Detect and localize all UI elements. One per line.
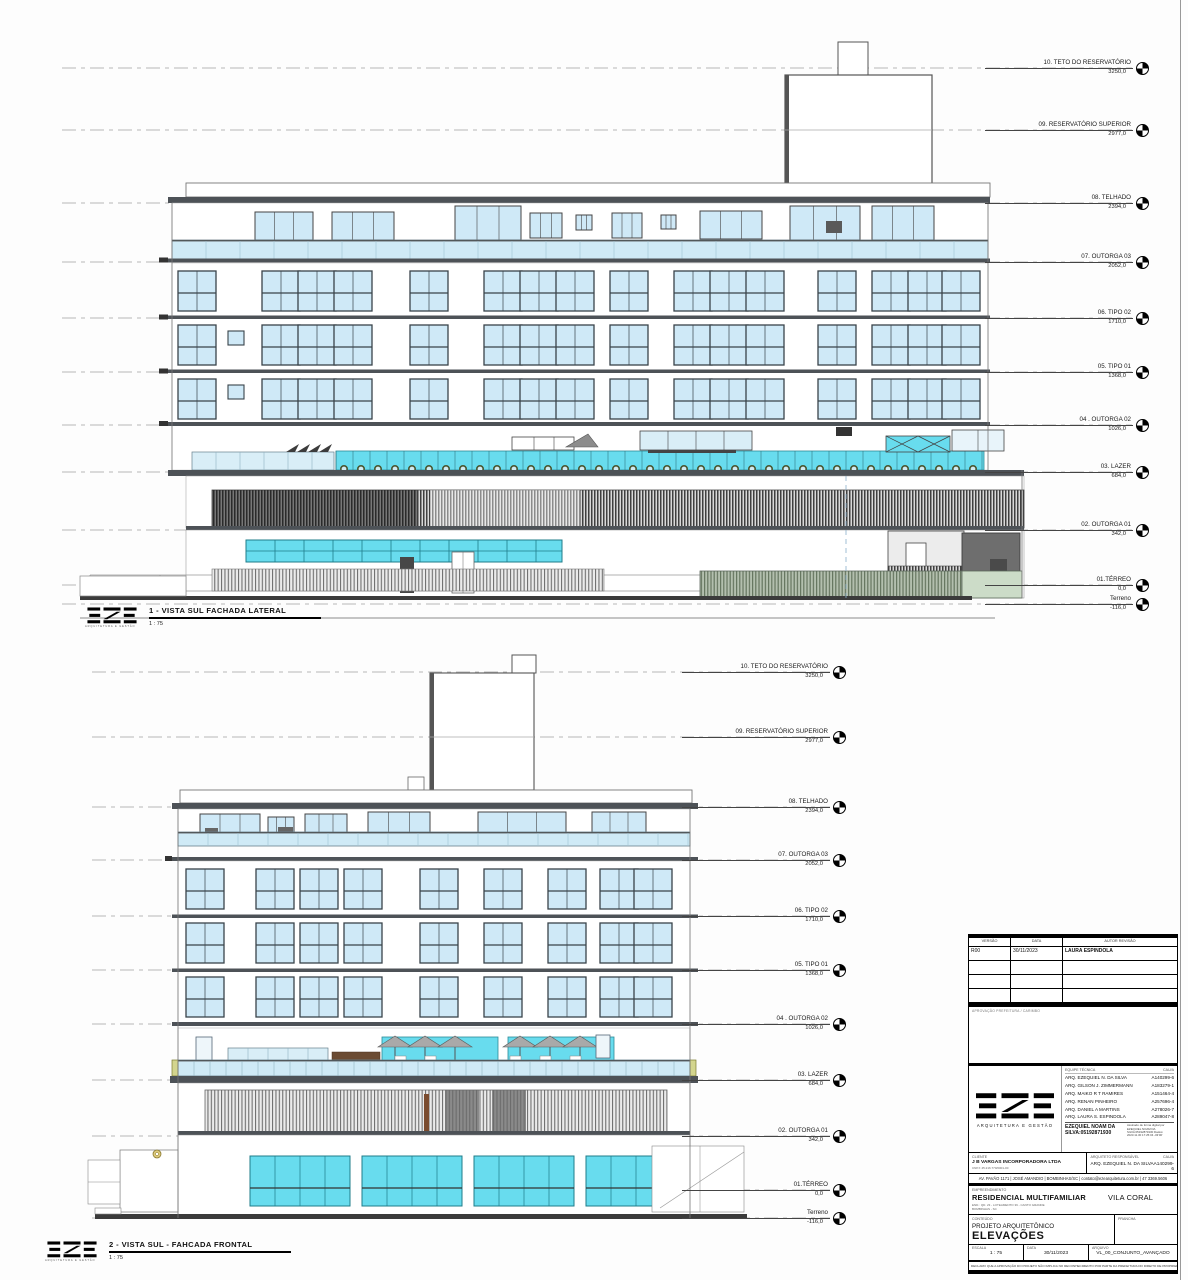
scale-label: ESCALA: [972, 1246, 1020, 1250]
level-marker: 08. TELHADO2394,0: [985, 194, 1133, 211]
level-marker: 10. TETO DO RESERVATÓRIO3250,0: [682, 663, 830, 680]
level-elevation: -116,0: [985, 605, 1133, 612]
level-label: 02. OUTORGA 01: [985, 521, 1133, 531]
approval-label: APROVAÇÃO PREFEITURA / CARIMBO: [972, 1009, 1040, 1013]
level-label: 04 . OUTORGA 02: [682, 1015, 830, 1025]
team-member: ARQ. GILSON J. ZIMMERMANNA183279-1: [1065, 1082, 1174, 1090]
drawing-title: 2 - VISTA SUL - FAHCADA FRONTAL: [109, 1240, 291, 1249]
project-section: EMPREENDIMENTO RESIDENCIAL MULTIFAMILIAR…: [969, 1186, 1177, 1215]
benchmark-icon: [833, 964, 846, 977]
benchmark-icon: [1136, 419, 1149, 432]
client-label: CLIENTE: [972, 1155, 1083, 1159]
benchmark-icon: [1136, 466, 1149, 479]
content-label: CONTEÚDO: [972, 1217, 1111, 1221]
team-member: ARQ. EZEQUIEL N. DA SILVAA140299-6: [1065, 1074, 1174, 1082]
level-elevation: 1026,0: [682, 1025, 830, 1032]
level-marker: 02. OUTORGA 01342,0: [985, 521, 1133, 538]
revision-row: [969, 989, 1177, 1003]
benchmark-icon: [1136, 524, 1149, 537]
level-marker: 06. TIPO 021710,0: [682, 907, 830, 924]
eze-logo-icon: ARQUITETURA E GESTÃO: [85, 607, 139, 628]
level-elevation: 2394,0: [985, 204, 1133, 211]
level-marker: 02. OUTORGA 01342,0: [682, 1127, 830, 1144]
client-cnpj: CNPJ: 45.216.770/0001-00: [972, 1166, 1083, 1170]
level-elevation: 1368,0: [682, 971, 830, 978]
team-member: ARQ. MAIKO R T RAMIRESA151464-4: [1065, 1090, 1174, 1098]
level-elevation: 0,0: [985, 586, 1133, 593]
benchmark-icon: [1136, 124, 1149, 137]
benchmark-icon: [1136, 62, 1149, 75]
content-line2: ELEVAÇÕES: [972, 1230, 1111, 1242]
benchmark-icon: [1136, 312, 1149, 325]
level-label: 06. TIPO 02: [985, 309, 1133, 319]
sheet-label: PRANCHA: [1118, 1217, 1174, 1221]
level-elevation: 2052,0: [985, 263, 1133, 270]
level-elevation: 2394,0: [682, 808, 830, 815]
level-label: 01.TÉRREO: [985, 576, 1133, 586]
benchmark-icon: [833, 731, 846, 744]
level-elevation: 684,0: [682, 1081, 830, 1088]
level-label: 10. TETO DO RESERVATÓRIO: [985, 59, 1133, 69]
level-marker: 03. LAZER684,0: [682, 1071, 830, 1088]
benchmark-icon: [833, 801, 846, 814]
level-elevation: 342,0: [985, 531, 1133, 538]
benchmark-icon: [833, 1184, 846, 1197]
level-marker: 09. RESERVATÓRIO SUPERIOR2977,0: [682, 728, 830, 745]
benchmark-icon: [1136, 598, 1149, 611]
title-underline: [109, 1251, 291, 1254]
benchmark-icon: [833, 1212, 846, 1225]
level-elevation: 3250,0: [985, 69, 1133, 76]
level-marker: 04 . OUTORGA 021026,0: [985, 416, 1133, 433]
level-elevation: 2052,0: [682, 861, 830, 868]
level-marker: Terreno-116,0: [682, 1209, 830, 1226]
logo-tagline: ARQUITETURA E GESTÃO: [85, 625, 139, 628]
drawing-title: 1 - VISTA SUL FACHADA LATERAL: [149, 606, 321, 615]
sheet-border: [1180, 0, 1181, 1280]
team-section: ARQUITETURA E GESTÃO EQUIPE TÉCNICA CAU/…: [969, 1063, 1177, 1152]
benchmark-icon: [833, 1074, 846, 1087]
team-member: ARQ. RENAN PINHEIROA257696-4: [1065, 1098, 1174, 1106]
responsible-label: ARQUITETO RESPONSÁVEL: [1090, 1155, 1153, 1159]
level-elevation: 1368,0: [985, 373, 1133, 380]
project-name: RESIDENCIAL MULTIFAMILIAR: [972, 1193, 1086, 1202]
project-name2: VILA CORAL: [1108, 1193, 1153, 1202]
level-elevation: 3250,0: [682, 673, 830, 680]
benchmark-icon: [1136, 197, 1149, 210]
drawing-scale: 1 : 75: [109, 1255, 291, 1261]
level-marker: 05. TIPO 011368,0: [985, 363, 1133, 380]
level-elevation: 684,0: [985, 473, 1133, 480]
content-section: CONTEÚDO PROJETO ARQUITETÔNICO ELEVAÇÕES…: [969, 1215, 1177, 1245]
level-label: 06. TIPO 02: [682, 907, 830, 917]
level-marker: 09. RESERVATÓRIO SUPERIOR2977,0: [985, 121, 1133, 138]
level-label: 05. TIPO 01: [985, 363, 1133, 373]
level-label: 05. TIPO 01: [682, 961, 830, 971]
level-marker: 07. OUTORGA 032052,0: [682, 851, 830, 868]
drawing-2-caption: ARQUITETURA E GESTÃO 2 - VISTA SUL - FAH…: [45, 1240, 291, 1261]
title-block: VERSÃODATAAUTOR REVISÃOR0030/11/2023LAUR…: [968, 934, 1178, 1274]
logo-tagline: ARQUITETURA E GESTÃO: [977, 1123, 1053, 1128]
level-elevation: 1026,0: [985, 426, 1133, 433]
eze-logo-icon: ARQUITETURA E GESTÃO: [45, 1241, 99, 1262]
level-marker: 08. TELHADO2394,0: [682, 798, 830, 815]
level-label: 10. TETO DO RESERVATÓRIO: [682, 663, 830, 673]
revision-table: VERSÃODATAAUTOR REVISÃOR0030/11/2023LAUR…: [969, 935, 1177, 1003]
level-label: 08. TELHADO: [682, 798, 830, 808]
cau-number: A140299-6: [1154, 1161, 1174, 1171]
level-marker: 01.TÉRREO0,0: [682, 1181, 830, 1198]
drawing-scale: 1 : 75: [149, 621, 321, 627]
project-label: EMPREENDIMENTO: [972, 1188, 1174, 1192]
benchmark-icon: [1136, 366, 1149, 379]
level-marker: 04 . OUTORGA 021026,0: [682, 1015, 830, 1032]
level-label: 03. LAZER: [985, 463, 1133, 473]
benchmark-icon: [1136, 256, 1149, 269]
level-label: 04 . OUTORGA 02: [985, 416, 1133, 426]
level-label: 07. OUTORGA 03: [985, 253, 1133, 263]
level-label: Terreno: [985, 595, 1133, 605]
level-marker: 01.TÉRREO0,0: [985, 576, 1133, 593]
level-marker: 05. TIPO 011368,0: [682, 961, 830, 978]
digital-signature: EZEQUIEL NOAM DA SILVA:05192871930 Assin…: [1065, 1122, 1174, 1137]
signature-name: EZEQUIEL NOAM DA SILVA:05192871930: [1065, 1124, 1127, 1137]
revision-row: [969, 961, 1177, 975]
level-marker: 06. TIPO 021710,0: [985, 309, 1133, 326]
team-member: ARQ. LAURA S. ESPINDOLAA289047-8: [1065, 1113, 1174, 1121]
level-elevation: 1710,0: [985, 319, 1133, 326]
level-marker: Terreno-116,0: [985, 595, 1133, 612]
file-label: ARQUIVO: [1092, 1246, 1174, 1250]
level-elevation: 342,0: [682, 1137, 830, 1144]
signature-meta: Assinado de forma digital por EZEQUIEL N…: [1127, 1124, 1174, 1137]
level-label: 09. RESERVATÓRIO SUPERIOR: [682, 728, 830, 738]
client-name: J B VARGAS INCORPORADORA LTDA: [972, 1160, 1083, 1165]
level-elevation: 2977,0: [985, 131, 1133, 138]
disclaimer: DECLARO QUE A APROVAÇÃO DO PROJETO NÃO I…: [969, 1262, 1177, 1273]
sheet: 10. TETO DO RESERVATÓRIO3250,009. RESERV…: [0, 0, 1188, 1280]
benchmark-icon: [833, 1130, 846, 1143]
scale-value: 1 : 75: [972, 1251, 1020, 1256]
level-label: Terreno: [682, 1209, 830, 1219]
level-elevation: 0,0: [682, 1191, 830, 1198]
benchmark-icon: [833, 666, 846, 679]
benchmark-icon: [833, 854, 846, 867]
level-marker: 03. LAZER684,0: [985, 463, 1133, 480]
level-label: 07. OUTORGA 03: [682, 851, 830, 861]
level-elevation: 1710,0: [682, 917, 830, 924]
team-rows: ARQ. EZEQUIEL N. DA SILVAA140299-6ARQ. G…: [1065, 1074, 1174, 1121]
office-address: AV. PAVÃO 1171 | JOSÉ AMANDIO | BOMBINHA…: [969, 1173, 1177, 1183]
date-label: DATA: [1027, 1246, 1085, 1250]
team-col1: EQUIPE TÉCNICA: [1065, 1068, 1095, 1072]
content-line1: PROJETO ARQUITETÔNICO: [972, 1223, 1111, 1230]
eze-logo: ARQUITETURA E GESTÃO: [969, 1066, 1061, 1152]
level-marker: 10. TETO DO RESERVATÓRIO3250,0: [985, 59, 1133, 76]
level-elevation: 2977,0: [682, 738, 830, 745]
benchmark-icon: [1136, 579, 1149, 592]
date-value: 30/11/2023: [1027, 1251, 1085, 1256]
client-row: CLIENTE J B VARGAS INCORPORADORA LTDA CN…: [969, 1152, 1177, 1173]
level-marker: 07. OUTORGA 032052,0: [985, 253, 1133, 270]
team-member: ARQ. DANIEL A MARTINSA278026-7: [1065, 1106, 1174, 1114]
level-label: 03. LAZER: [682, 1071, 830, 1081]
revision-row: [969, 975, 1177, 989]
benchmark-icon: [833, 910, 846, 923]
level-label: 01.TÉRREO: [682, 1181, 830, 1191]
file-value: VL_00_CONJUNTO_AVANÇADO: [1092, 1251, 1174, 1256]
revision-row: R0030/11/2023LAURA ESPINDOLA: [969, 947, 1177, 961]
cau-label: CAU/A: [1154, 1155, 1174, 1159]
revision-header: VERSÃODATAAUTOR REVISÃO: [969, 938, 1177, 947]
responsible-name: ARQ. EZEQUIEL N. DA SILVA: [1090, 1161, 1153, 1166]
level-label: 08. TELHADO: [985, 194, 1133, 204]
logo-tagline: ARQUITETURA E GESTÃO: [45, 1259, 99, 1262]
level-elevation: -116,0: [682, 1219, 830, 1226]
approval-stamp-area: APROVAÇÃO PREFEITURA / CARIMBO: [969, 1007, 1177, 1063]
title-underline: [149, 617, 321, 620]
level-label: 09. RESERVATÓRIO SUPERIOR: [985, 121, 1133, 131]
team-col2: CAU/A: [1163, 1068, 1174, 1072]
project-address-2: BOMBINHAS - SC: [972, 1208, 1174, 1212]
meta-row: ESCALA 1 : 75 DATA 30/11/2023 ARQUIVO VL…: [969, 1245, 1177, 1262]
level-label: 02. OUTORGA 01: [682, 1127, 830, 1137]
benchmark-icon: [833, 1018, 846, 1031]
drawing-1-caption: ARQUITETURA E GESTÃO 1 - VISTA SUL FACHA…: [85, 606, 321, 627]
